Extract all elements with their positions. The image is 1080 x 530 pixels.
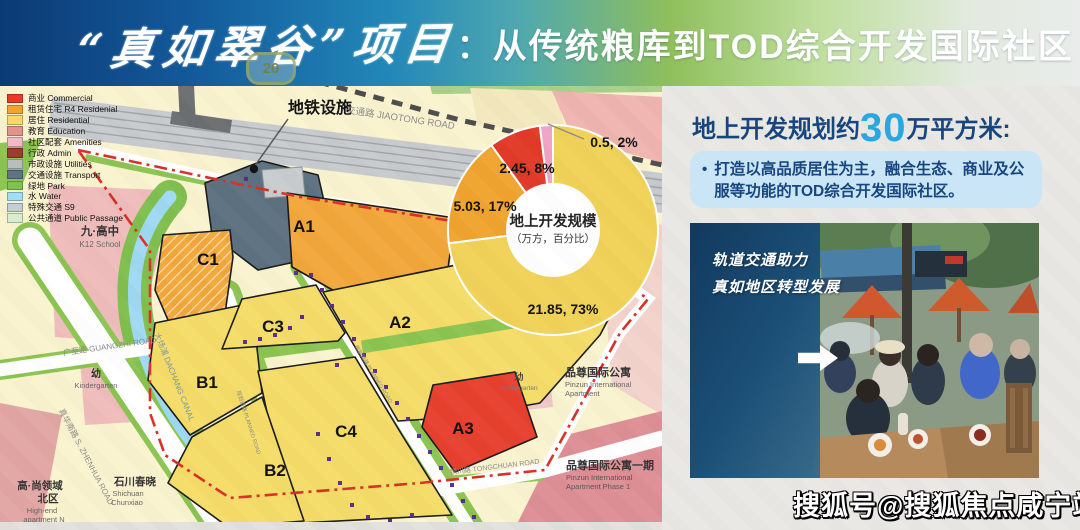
svg-text:Apartment: Apartment xyxy=(565,389,601,398)
metro-facility-label: 地铁设施 xyxy=(288,98,352,117)
svg-text:高·尚领域: 高·尚领域 xyxy=(17,479,63,492)
development-info-box: • 打造以高品质居住为主，融合生态、商业及公服等功能的TOD综合开发国际社区。 xyxy=(690,151,1042,208)
legend-item: 租赁住宅 R4 Residenial xyxy=(7,104,123,115)
svg-text:A3: A3 xyxy=(452,419,474,438)
watermark-sohu: 搜狐号@搜狐焦点咸宁站 xyxy=(793,484,1080,523)
svg-text:Chunxiao: Chunxiao xyxy=(111,498,143,507)
legend-item: 公共通道 Public Passage xyxy=(7,213,123,224)
svg-text:幼: 幼 xyxy=(91,367,101,380)
svg-text:石川春晓: 石川春晓 xyxy=(113,475,156,488)
legend-swatch-park xyxy=(7,181,23,191)
svg-text:C3: C3 xyxy=(262,317,284,336)
svg-text:Pinzun International: Pinzun International xyxy=(566,473,633,482)
svg-text:2.45, 8%: 2.45, 8% xyxy=(499,160,555,176)
legend-item: 居住 Residential xyxy=(7,115,123,126)
page-title: 从传统粮库到TOD综合开发国际社区 xyxy=(493,19,1074,68)
legend-item: 市政设施 Utilities xyxy=(7,158,123,169)
pie-subtitle: （万方，百分比） xyxy=(511,232,595,245)
svg-text:Kindergarten: Kindergarten xyxy=(500,385,538,392)
legend-swatch-passage xyxy=(7,213,23,223)
pie-title: 地上开发规模 xyxy=(510,212,597,230)
bullet-dot: • xyxy=(702,161,707,200)
development-scale-pie: 地上开发规模 （万方，百分比） 21.85, 73% 5.03, 17% 2.4… xyxy=(448,124,658,335)
svg-text:Kindergarten: Kindergarten xyxy=(75,381,118,390)
svg-text:5.03, 17%: 5.03, 17% xyxy=(453,198,517,214)
svg-text:apartment N: apartment N xyxy=(23,515,64,522)
photo-caption-line1: 轨道交通助力 xyxy=(712,249,808,270)
map-legend: 商业 Commercial 租赁住宅 R4 Residenial 居住 Resi… xyxy=(7,93,123,224)
svg-text:Shichuan: Shichuan xyxy=(112,489,143,498)
svg-text:21.85, 73%: 21.85, 73% xyxy=(528,301,599,317)
legend-swatch-s9 xyxy=(7,203,23,213)
svg-text:九·高中: 九·高中 xyxy=(80,224,119,238)
photo-card-caption-panel: 轨道交通助力 真如地区转型发展 xyxy=(690,223,820,478)
bottom-strip xyxy=(0,522,662,530)
legend-swatch-residential xyxy=(7,115,23,125)
slide: “真如翠谷”项目 ： 从传统粮库到TOD综合开发国际社区 20 xyxy=(0,0,1080,530)
legend-swatch-water xyxy=(7,192,23,202)
legend-swatch-amenities xyxy=(7,137,23,147)
legend-item: 交通设施 Transport xyxy=(7,169,123,180)
legend-item: 社区配套 Amenities xyxy=(7,137,123,148)
svg-text:Apartment Phase 1: Apartment Phase 1 xyxy=(566,482,630,491)
svg-text:0.5, 2%: 0.5, 2% xyxy=(590,134,638,150)
title-banner: “真如翠谷”项目 ： 从传统粮库到TOD综合开发国际社区 xyxy=(0,0,1080,86)
svg-text:品尊国际公寓一期: 品尊国际公寓一期 xyxy=(566,458,654,472)
legend-swatch-commercial xyxy=(7,94,23,104)
heading-number: 30 xyxy=(860,106,907,150)
donut-hole xyxy=(507,184,599,276)
svg-text:K12 School: K12 School xyxy=(80,240,121,249)
legend-item: 绿地 Park xyxy=(7,180,123,191)
svg-text:品尊国际公寓: 品尊国际公寓 xyxy=(565,365,631,379)
legend-swatch-education xyxy=(7,126,23,136)
development-description: 打造以高品质居住为主，融合生态、商业及公服等功能的TOD综合开发国际社区。 xyxy=(714,159,1030,200)
site-plan-map: 地铁设施 交通路 JIAOTONG ROAD 广至路 GUANGZHI ROAD… xyxy=(0,85,662,522)
legend-item: 行政 Admin xyxy=(7,147,123,158)
svg-text:B2: B2 xyxy=(264,461,286,480)
legend-swatch-transport xyxy=(7,170,23,180)
svg-text:Pinzun International: Pinzun International xyxy=(565,380,632,389)
legend-item: 水 Water xyxy=(7,191,123,202)
legend-item: 教育 Education xyxy=(7,126,123,137)
svg-text:C1: C1 xyxy=(197,250,219,269)
legend-item: 商业 Commercial xyxy=(7,93,123,104)
route-20-badge: 20 xyxy=(246,52,296,85)
title-colon: ： xyxy=(457,19,493,68)
legend-swatch-r4 xyxy=(7,105,23,115)
svg-text:北区: 北区 xyxy=(38,492,59,505)
legend-swatch-admin xyxy=(7,148,23,158)
street-life-photo-card: 轨道交通助力 真如地区转型发展 xyxy=(690,223,1039,478)
svg-text:A2: A2 xyxy=(389,313,411,332)
svg-text:B1: B1 xyxy=(196,373,218,392)
svg-text:C4: C4 xyxy=(335,422,357,441)
svg-text:幼: 幼 xyxy=(514,371,523,382)
photo-caption-line2: 真如地区转型发展 xyxy=(712,276,840,297)
svg-text:A1: A1 xyxy=(293,217,315,236)
svg-text:High-end: High-end xyxy=(27,506,57,515)
development-heading: 地上开发规划约30万平方米: xyxy=(692,106,1052,151)
legend-item: 特殊交通 S9 xyxy=(7,202,123,213)
legend-swatch-utilities xyxy=(7,159,23,169)
